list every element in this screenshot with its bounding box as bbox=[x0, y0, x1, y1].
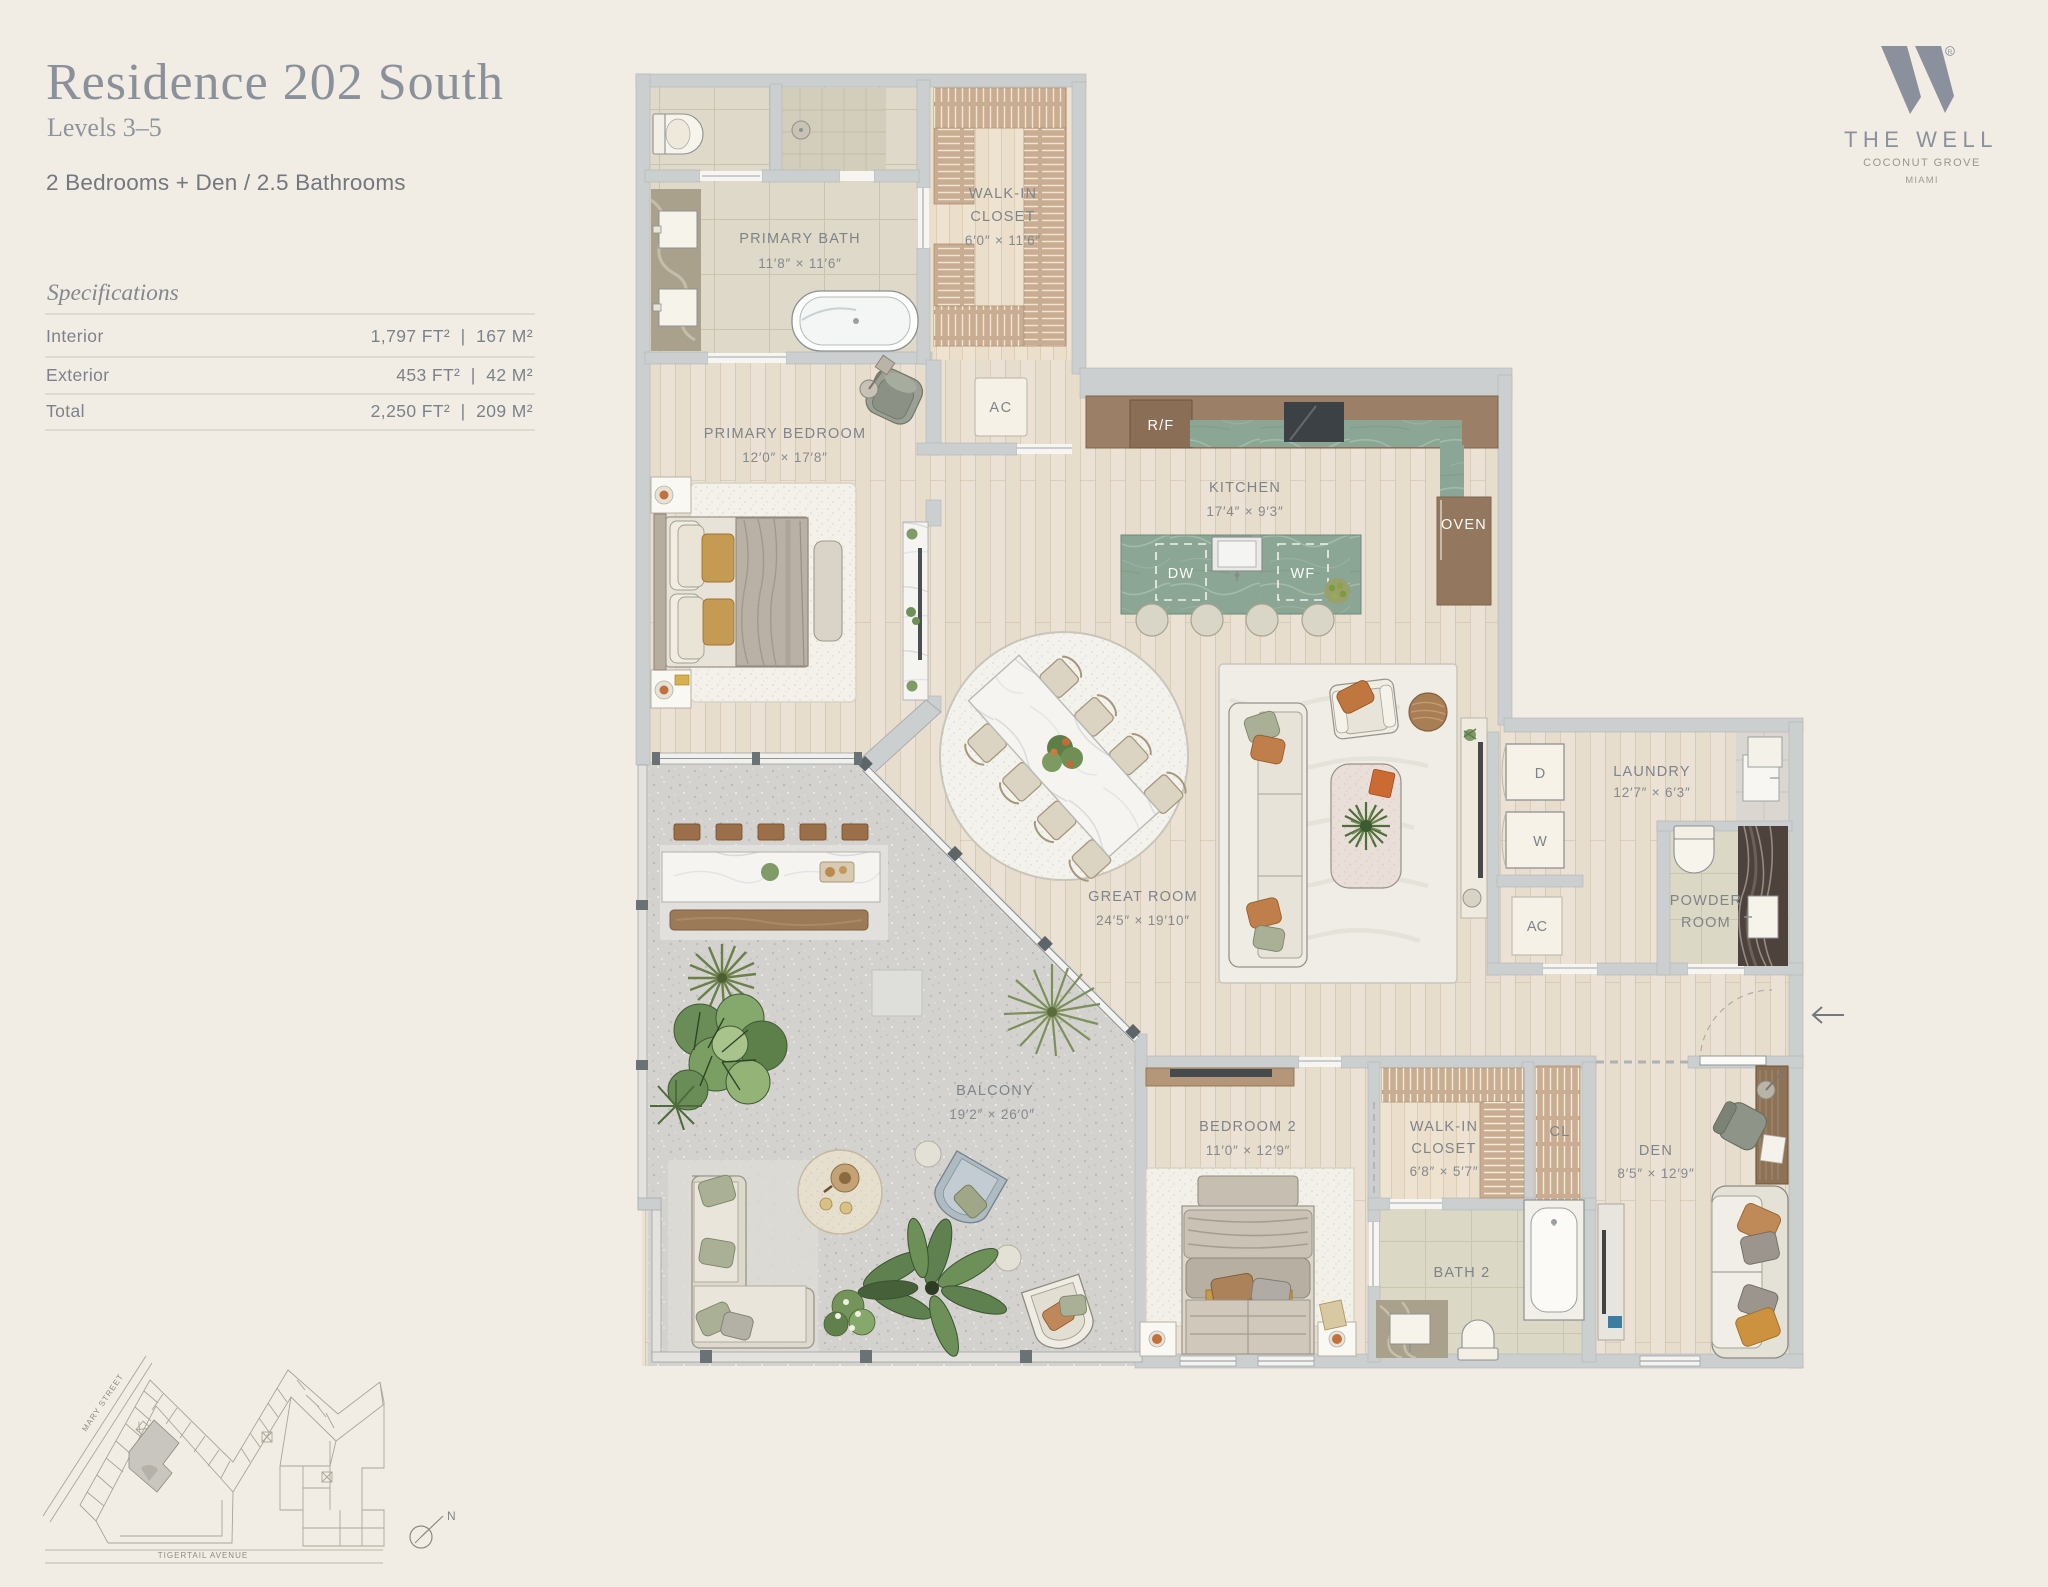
svg-text:D: D bbox=[1535, 766, 1545, 782]
svg-text:6′0″ × 11′6″: 6′0″ × 11′6″ bbox=[965, 233, 1041, 248]
svg-text:MIAMI: MIAMI bbox=[1905, 175, 1938, 186]
svg-text:KITCHEN: KITCHEN bbox=[1209, 480, 1281, 496]
svg-text:LAUNDRY: LAUNDRY bbox=[1613, 764, 1690, 780]
svg-text:COCONUT GROVE: COCONUT GROVE bbox=[1863, 157, 1981, 169]
svg-text:DEN: DEN bbox=[1639, 1143, 1673, 1159]
svg-text:24′5″ × 19′10″: 24′5″ × 19′10″ bbox=[1096, 913, 1190, 928]
svg-text:19′2″ × 26′0″: 19′2″ × 26′0″ bbox=[949, 1107, 1034, 1122]
svg-text:R: R bbox=[1948, 49, 1953, 56]
svg-text:BATH 2: BATH 2 bbox=[1434, 1265, 1491, 1281]
svg-text:PRIMARY BEDROOM: PRIMARY BEDROOM bbox=[704, 426, 867, 442]
svg-text:c: c bbox=[1552, 1221, 1556, 1228]
svg-text:WALK-IN: WALK-IN bbox=[969, 186, 1037, 202]
svg-text:8′5″ × 12′9″: 8′5″ × 12′9″ bbox=[1617, 1166, 1694, 1181]
svg-text:11′8″ × 11′6″: 11′8″ × 11′6″ bbox=[758, 256, 841, 271]
svg-text:R/F: R/F bbox=[1148, 418, 1175, 434]
svg-text:6′8″ × 5′7″: 6′8″ × 5′7″ bbox=[1410, 1164, 1479, 1179]
svg-text:Interior: Interior bbox=[46, 326, 104, 346]
svg-text:BEDROOM 2: BEDROOM 2 bbox=[1199, 1119, 1297, 1135]
svg-text:GREAT ROOM: GREAT ROOM bbox=[1088, 889, 1198, 905]
svg-text:1,797 FT² | 167 M²: 1,797 FT² | 167 M² bbox=[371, 326, 533, 346]
svg-text:12′7″ × 6′3″: 12′7″ × 6′3″ bbox=[1613, 785, 1690, 800]
svg-text:AC: AC bbox=[989, 400, 1012, 416]
svg-text:17′4″ × 9′3″: 17′4″ × 9′3″ bbox=[1206, 504, 1283, 519]
svg-text:N: N bbox=[447, 1509, 456, 1523]
svg-text:CLOSET: CLOSET bbox=[1411, 1141, 1476, 1157]
svg-text:12′0″ × 17′8″: 12′0″ × 17′8″ bbox=[742, 450, 827, 465]
svg-text:11′0″ × 12′9″: 11′0″ × 12′9″ bbox=[1206, 1143, 1290, 1158]
svg-text:DW: DW bbox=[1168, 566, 1195, 582]
svg-text:Levels 3–5: Levels 3–5 bbox=[47, 113, 162, 142]
svg-text:W: W bbox=[1533, 834, 1547, 850]
svg-text:AC: AC bbox=[1527, 919, 1547, 935]
svg-text:Residence 202 South: Residence 202 South bbox=[46, 54, 504, 111]
svg-text:WF: WF bbox=[1291, 566, 1316, 582]
svg-text:OVEN: OVEN bbox=[1441, 517, 1487, 533]
svg-text:PRIMARY BATH: PRIMARY BATH bbox=[739, 231, 861, 247]
svg-text:Total: Total bbox=[46, 401, 85, 421]
svg-text:Exterior: Exterior bbox=[46, 365, 110, 385]
svg-text:2 Bedrooms + Den / 2.5 Bathroo: 2 Bedrooms + Den / 2.5 Bathrooms bbox=[46, 170, 406, 195]
svg-text:Specifications: Specifications bbox=[47, 280, 179, 306]
svg-text:BALCONY: BALCONY bbox=[956, 1083, 1034, 1099]
svg-text:CLOSET: CLOSET bbox=[970, 209, 1035, 225]
svg-text:TIGERTAIL AVENUE: TIGERTAIL AVENUE bbox=[158, 1551, 248, 1560]
svg-text:2,250 FT² | 209 M²: 2,250 FT² | 209 M² bbox=[371, 401, 533, 421]
svg-text:453 FT² | 42 M²: 453 FT² | 42 M² bbox=[396, 365, 533, 385]
svg-text:WALK-IN: WALK-IN bbox=[1410, 1119, 1478, 1135]
svg-text:THE WELL: THE WELL bbox=[1844, 127, 1998, 152]
svg-text:CL: CL bbox=[1550, 1124, 1571, 1140]
svg-text:ROOM: ROOM bbox=[1681, 915, 1731, 931]
svg-text:POWDER: POWDER bbox=[1670, 893, 1742, 909]
